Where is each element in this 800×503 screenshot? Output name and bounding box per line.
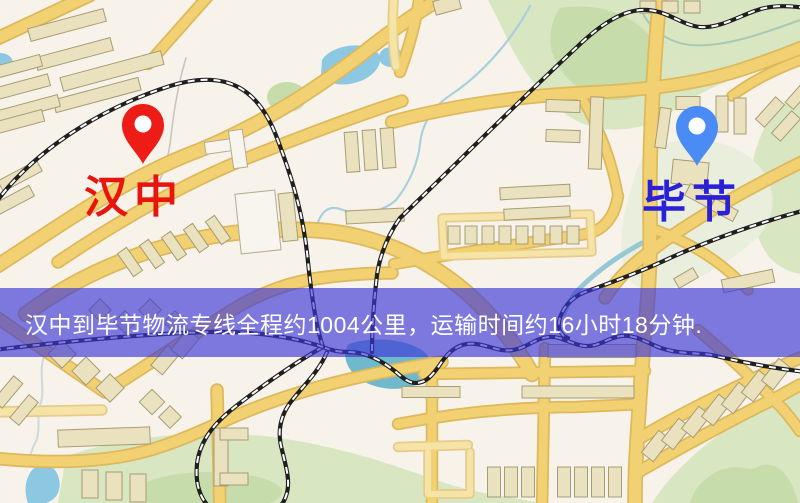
building	[380, 128, 396, 169]
building	[567, 226, 579, 244]
route-info-banner: 汉中到毕节物流专线全程约1004公里，运输时间约16小时18分钟.	[0, 288, 800, 357]
route-info-text: 汉中到毕节物流专线全程约1004公里，运输时间约16小时18分钟.	[25, 306, 702, 340]
building	[592, 467, 605, 497]
building	[220, 473, 248, 485]
map-canvas[interactable]	[0, 0, 800, 503]
building	[575, 467, 588, 497]
pin-hole	[689, 118, 706, 135]
building	[362, 130, 378, 171]
building	[58, 427, 151, 447]
building	[220, 428, 248, 440]
destination-label: 毕节	[642, 181, 742, 225]
building	[546, 99, 580, 112]
building	[558, 467, 571, 497]
building	[533, 226, 545, 244]
map-screenshot: 汉中 毕节 汉中到毕节物流专线全程约1004公里，运输时间约16小时18分钟.	[0, 0, 800, 503]
building	[734, 98, 746, 134]
road	[398, 445, 468, 447]
building	[499, 226, 511, 244]
building	[465, 226, 477, 244]
pin-hole	[135, 116, 152, 133]
building	[106, 472, 122, 500]
road	[424, 371, 645, 374]
building	[402, 387, 460, 398]
origin-pin[interactable]	[120, 103, 166, 165]
building	[522, 386, 634, 398]
map-pin-icon	[120, 103, 166, 165]
building	[550, 226, 562, 244]
pin-body	[676, 106, 718, 166]
building	[82, 470, 98, 498]
building	[546, 129, 580, 142]
building	[609, 467, 622, 497]
building	[235, 190, 281, 254]
building	[130, 474, 146, 502]
building	[516, 226, 528, 244]
building	[488, 467, 501, 497]
origin-label: 汉中	[84, 176, 184, 220]
building	[482, 226, 494, 244]
building	[662, 1, 678, 13]
pin-body	[122, 104, 164, 164]
building	[522, 467, 535, 497]
destination-pin[interactable]	[674, 105, 720, 167]
map-pin-icon	[674, 105, 720, 167]
building	[588, 97, 604, 169]
building	[505, 467, 518, 497]
road	[393, 0, 396, 66]
building	[684, 1, 700, 13]
building	[344, 132, 360, 173]
building	[448, 226, 460, 244]
